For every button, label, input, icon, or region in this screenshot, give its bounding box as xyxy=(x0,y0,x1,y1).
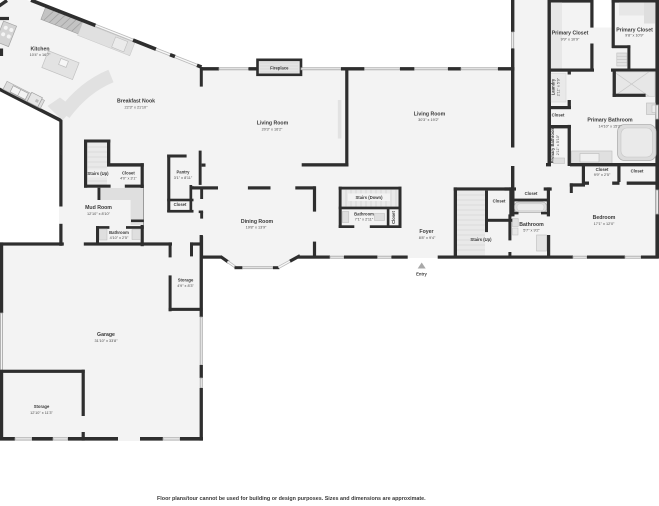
svg-text:2'11" x 5'10": 2'11" x 5'10" xyxy=(556,134,560,155)
svg-text:12'10" x 11'3": 12'10" x 11'3" xyxy=(30,411,53,415)
svg-text:Laundry: Laundry xyxy=(551,78,556,95)
svg-text:12'10" x 8'10": 12'10" x 8'10" xyxy=(87,212,111,216)
svg-text:Primary Closet: Primary Closet xyxy=(552,31,589,37)
svg-text:Fireplace: Fireplace xyxy=(270,65,289,70)
svg-text:Foyer: Foyer xyxy=(419,229,433,235)
svg-text:9'8" x 10'9": 9'8" x 10'9" xyxy=(625,34,644,38)
svg-text:Closet: Closet xyxy=(631,169,644,174)
svg-text:Closet: Closet xyxy=(525,191,538,196)
svg-text:Primary Bathroom: Primary Bathroom xyxy=(587,118,633,124)
svg-text:Floor plans/tour cannot be use: Floor plans/tour cannot be used for buil… xyxy=(157,496,426,502)
svg-text:4'9" x 8'3": 4'9" x 8'3" xyxy=(177,284,194,288)
svg-text:Dining Room: Dining Room xyxy=(241,219,274,225)
svg-text:Closet: Closet xyxy=(552,113,565,118)
svg-text:Pantry: Pantry xyxy=(176,170,190,175)
svg-text:30'3" x 19'2": 30'3" x 19'2" xyxy=(418,118,439,122)
svg-text:Stairs (Up): Stairs (Up) xyxy=(87,171,109,176)
svg-text:Living Room: Living Room xyxy=(414,112,446,118)
svg-text:17'1" x 12'0": 17'1" x 12'0" xyxy=(594,222,615,226)
svg-text:10'4" x 16'7": 10'4" x 16'7" xyxy=(30,53,51,57)
svg-text:2'11" x 5'9": 2'11" x 5'9" xyxy=(557,77,561,96)
svg-text:Entry: Entry xyxy=(416,272,427,277)
svg-text:9'9" x 10'9": 9'9" x 10'9" xyxy=(561,38,580,42)
svg-text:Breakfast Nook: Breakfast Nook xyxy=(117,99,155,105)
svg-text:31'10" x 33'8": 31'10" x 33'8" xyxy=(95,339,119,343)
svg-text:Closet: Closet xyxy=(493,199,506,204)
svg-text:27'0": 27'0" xyxy=(59,149,63,155)
svg-text:Bathroom: Bathroom xyxy=(519,222,544,228)
svg-text:4'10" x 2'5": 4'10" x 2'5" xyxy=(110,236,129,240)
svg-text:Bedroom: Bedroom xyxy=(593,215,616,221)
svg-text:Living Room: Living Room xyxy=(257,121,289,127)
svg-text:3'1" x 8'11": 3'1" x 8'11" xyxy=(174,176,193,180)
svg-text:9'9" x 2'5": 9'9" x 2'5" xyxy=(594,173,611,177)
svg-text:Bathroom: Bathroom xyxy=(354,212,374,217)
svg-text:Stairs (Down): Stairs (Down) xyxy=(356,195,384,200)
svg-text:5'7" x 9'2": 5'7" x 9'2" xyxy=(523,229,540,233)
svg-text:7'1" x 2'11": 7'1" x 2'11" xyxy=(355,218,374,222)
svg-text:14'10" x 15'2": 14'10" x 15'2" xyxy=(599,125,623,129)
svg-text:Closet: Closet xyxy=(122,171,135,176)
svg-text:Closet: Closet xyxy=(596,167,609,172)
svg-text:Storage: Storage xyxy=(34,404,50,409)
svg-text:4'0" x 3'1": 4'0" x 3'1" xyxy=(120,177,137,181)
svg-text:20'3" x 16'2": 20'3" x 16'2" xyxy=(262,128,283,132)
svg-text:Garage: Garage xyxy=(97,332,115,338)
svg-text:8'8" x 9'4": 8'8" x 9'4" xyxy=(419,236,436,240)
svg-text:Bathroom: Bathroom xyxy=(109,230,129,235)
svg-text:Stairs (Up): Stairs (Up) xyxy=(470,237,492,242)
svg-text:Kitchen: Kitchen xyxy=(30,47,49,53)
svg-text:19'8" x 13'9": 19'8" x 13'9" xyxy=(246,226,267,230)
svg-text:Closet: Closet xyxy=(174,202,187,207)
svg-text:Mud Room: Mud Room xyxy=(85,205,112,211)
svg-text:Storage: Storage xyxy=(178,278,194,283)
svg-text:22'3" x 21'10": 22'3" x 21'10" xyxy=(125,106,149,110)
svg-text:Closet: Closet xyxy=(391,211,396,224)
